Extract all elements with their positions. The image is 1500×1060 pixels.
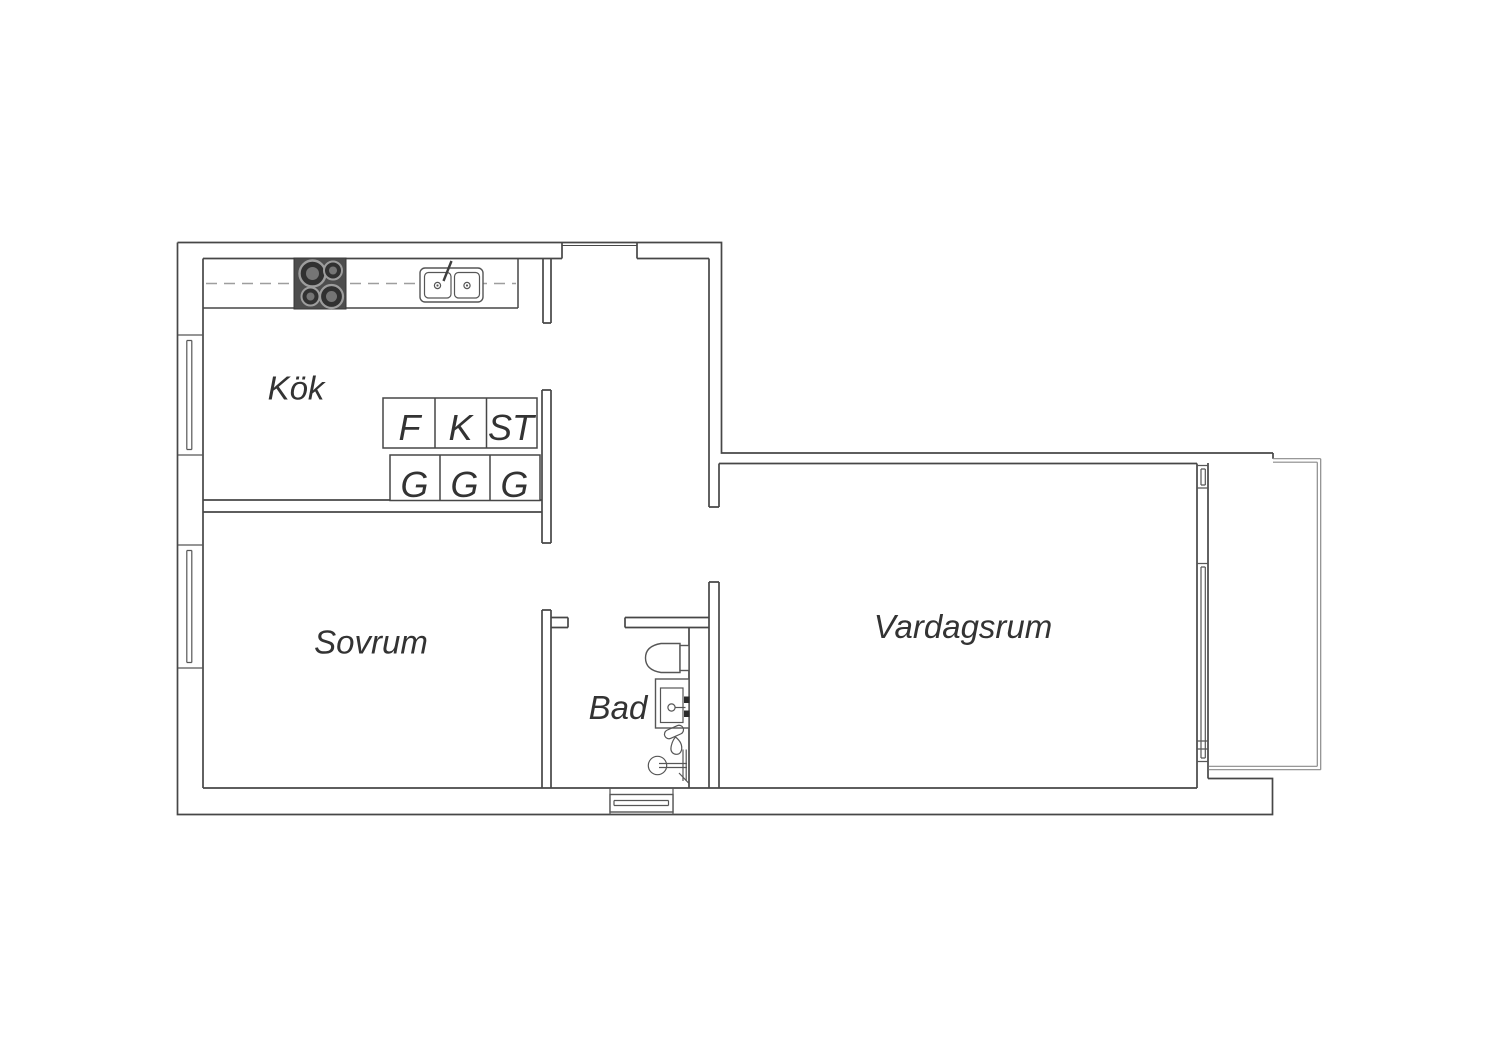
- shower-tick: [679, 773, 690, 784]
- burner-top-left-center: [306, 267, 319, 280]
- walls-outer: [178, 243, 1274, 815]
- walls: [178, 243, 1274, 815]
- window-livingroom-small-icon: [1197, 466, 1208, 489]
- window-kitchen-glass: [178, 335, 203, 455]
- window-bathroom-frame: [610, 795, 673, 813]
- washbasin-tap-bottom: [684, 711, 690, 718]
- stove-icon: [294, 258, 346, 309]
- window-bedroom-glass: [178, 545, 203, 668]
- cabinet-row-upper: F K ST: [383, 398, 537, 448]
- window-bedroom-icon: [178, 545, 203, 668]
- cabinet-label-k: K: [448, 407, 474, 448]
- washbasin-tap-top: [684, 697, 690, 704]
- shower-wall-rail: [683, 750, 686, 782]
- hand-shower-hose: [671, 737, 682, 754]
- sink-drain-left-dot: [436, 284, 438, 286]
- window-kitchen-icon: [178, 335, 203, 455]
- room-label-bad: Bad: [589, 689, 649, 726]
- walls-inner: [203, 243, 1197, 789]
- balcony-rails: [1209, 459, 1321, 770]
- shower-mixer-icon: [648, 750, 689, 785]
- window-livingroom-large-icon: [1197, 564, 1208, 762]
- sink-drain-right-dot: [466, 284, 468, 286]
- sink-icon: [420, 261, 483, 302]
- bathroom-fixtures: [646, 644, 690, 785]
- cabinet-label-g3: G: [500, 464, 528, 505]
- room-label-sovrum: Sovrum: [314, 624, 428, 661]
- room-label-kok: Kök: [268, 370, 326, 407]
- toilet-tank: [680, 646, 689, 671]
- cabinet-label-g2: G: [450, 464, 478, 505]
- washbasin-icon: [656, 679, 690, 728]
- kitchen-counter: [203, 258, 518, 309]
- cabinet-label-g1: G: [400, 464, 428, 505]
- balcony-outline: [1209, 459, 1321, 770]
- cabinet-label-st: ST: [488, 407, 537, 448]
- toilet-bowl: [646, 644, 681, 673]
- toilet-icon: [646, 644, 690, 673]
- burner-bottom-left-center: [307, 293, 315, 301]
- cabinet-label-f: F: [399, 407, 423, 448]
- window-livingroom-small-glass: [1197, 466, 1208, 489]
- shower-dial: [648, 756, 666, 774]
- room-label-vardagsrum: Vardagsrum: [874, 608, 1053, 645]
- floor-plan-drawing: F K ST G G G: [0, 0, 1500, 1060]
- floor-plan: F K ST G G G: [0, 0, 1500, 1060]
- burner-bottom-right-center: [326, 291, 337, 302]
- window-bathroom-icon: [610, 789, 673, 815]
- cabinet-row-lower: G G G: [390, 455, 540, 505]
- window-livingroom-large-glass: [1197, 564, 1208, 762]
- burner-top-right-center: [329, 267, 337, 275]
